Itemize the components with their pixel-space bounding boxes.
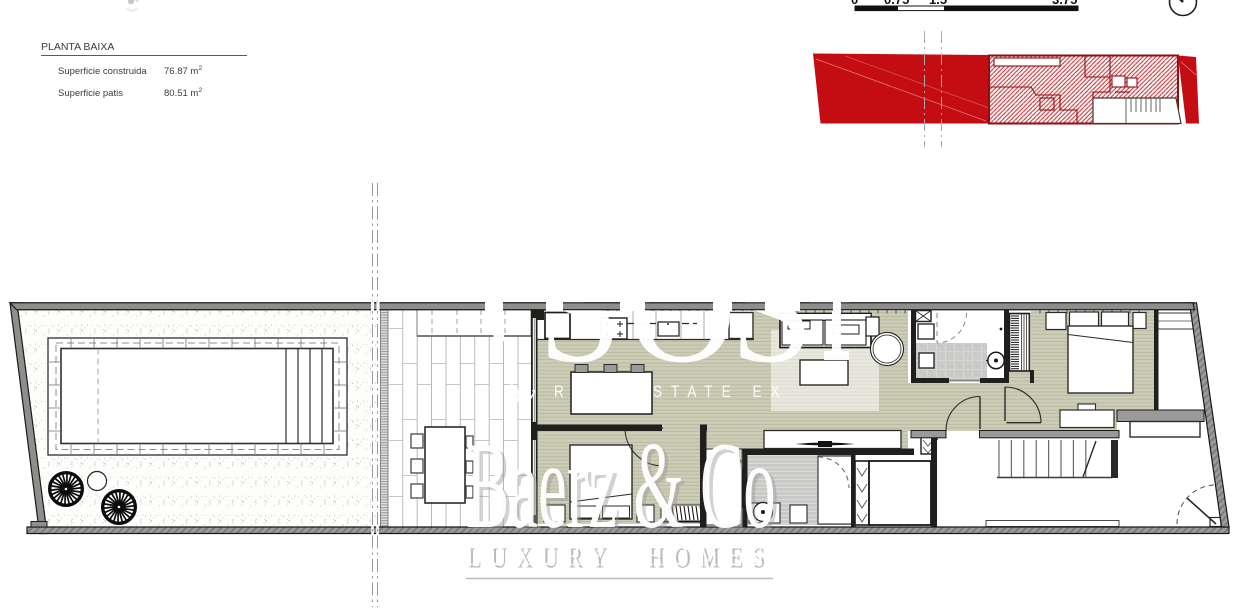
svg-text:REAL: REAL xyxy=(554,383,625,402)
svg-text:2: 2 xyxy=(199,65,203,72)
svg-text:by: by xyxy=(506,376,536,411)
svg-text:76.87 m: 76.87 m xyxy=(164,66,198,77)
svg-text:STATE EX: STATE EX xyxy=(653,383,789,402)
svg-text:Baerz & Co: Baerz & Co xyxy=(466,418,776,555)
svg-text:3.75: 3.75 xyxy=(1052,0,1077,7)
svg-text:0: 0 xyxy=(851,0,858,7)
svg-text:Superficie patis: Superficie patis xyxy=(58,88,123,99)
svg-text:80.51 m: 80.51 m xyxy=(164,88,198,99)
svg-text:2: 2 xyxy=(199,87,203,94)
svg-text:1.5: 1.5 xyxy=(929,0,947,7)
svg-text:PLANTA BAIXA: PLANTA BAIXA xyxy=(41,41,114,53)
svg-text:LUXURY HOMES: LUXURY HOMES xyxy=(466,542,773,572)
svg-text:Superficie construida: Superficie construida xyxy=(58,66,147,77)
svg-text:0.75: 0.75 xyxy=(884,0,909,7)
